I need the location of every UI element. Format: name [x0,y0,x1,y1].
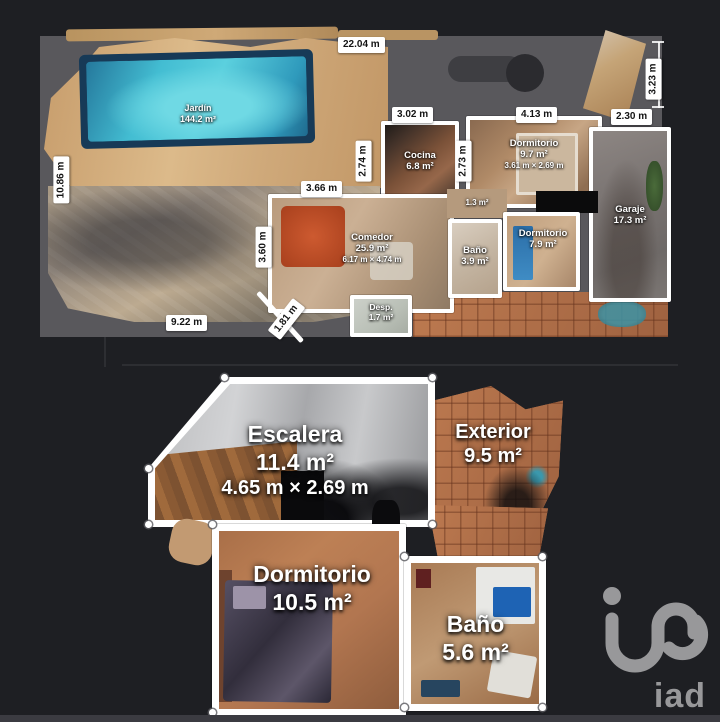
measure-tick [652,106,664,108]
dim-label-dorm-height: 2.73 m [456,140,472,181]
room-dormitorio-floor2 [212,524,406,716]
dim-label-patio-width: 9.22 m [166,315,207,331]
dim-label-height-left: 10.86 m [53,157,69,204]
room-bano-floor2 [404,556,546,711]
dim-label-total-width: 22.04 m [338,37,385,53]
stairs [155,441,297,520]
scan-artifact-circle [506,54,544,92]
dim-label-garaje-width: 2.30 m [611,109,652,125]
floorplan-screenshot: Jardín 144.2 m² Cocina 6.8 m² Dormitorio… [0,0,720,722]
sofa [281,206,345,267]
dim-label-cocina-width: 3.02 m [392,107,433,123]
wall-vertex-dot [539,704,546,711]
wall-vertex-dot [145,465,152,472]
pillow [233,586,265,609]
dim-label-comedor-width: 3.66 m [301,181,342,197]
dark-red-box [416,569,431,589]
wall-vertex-dot [401,704,408,711]
pool-water [86,56,308,142]
wall-vertex-dot [429,374,436,381]
scan-black-patch [536,191,598,213]
dim-label-dorm-width: 4.13 m [516,107,557,123]
table [370,242,413,280]
shower-tray-blue [493,587,531,617]
teal-scan-blob [598,301,646,327]
iad-logo: iad [600,583,712,715]
hallway [447,189,507,218]
guide-line-vertical [104,337,106,367]
wall-vertex-dot [401,553,408,560]
measure-tick [652,41,664,43]
exterior-tiles-lower [428,505,548,561]
wall-vertex-dot [221,374,228,381]
plant-blob [646,161,662,211]
bath-mat [421,680,459,697]
wall-vertex-dot [539,553,546,560]
dim-label-comedor-height: 3.60 m [256,226,272,267]
bottom-edge-strip [0,715,720,722]
room-despensa [350,295,412,337]
dim-label-cocina-height: 2.74 m [356,140,372,181]
wardrobe-blue [513,226,534,280]
room-dormitorio-2 [503,212,580,291]
stair-opening [281,471,325,520]
wall-vertex-dot [209,521,216,528]
room-garaje [589,127,671,302]
wall-vertex-dot [145,521,152,528]
wall-vertex-dot [429,521,436,528]
guide-line-horizontal [122,364,678,366]
room-bano-1 [448,219,502,298]
iad-logo-icon: iad [600,583,712,715]
bed [516,133,578,194]
iad-logo-text: iad [654,677,706,715]
pool [79,49,315,149]
toilet [487,650,537,699]
dim-label-height-right: 3.23 m [646,58,662,99]
